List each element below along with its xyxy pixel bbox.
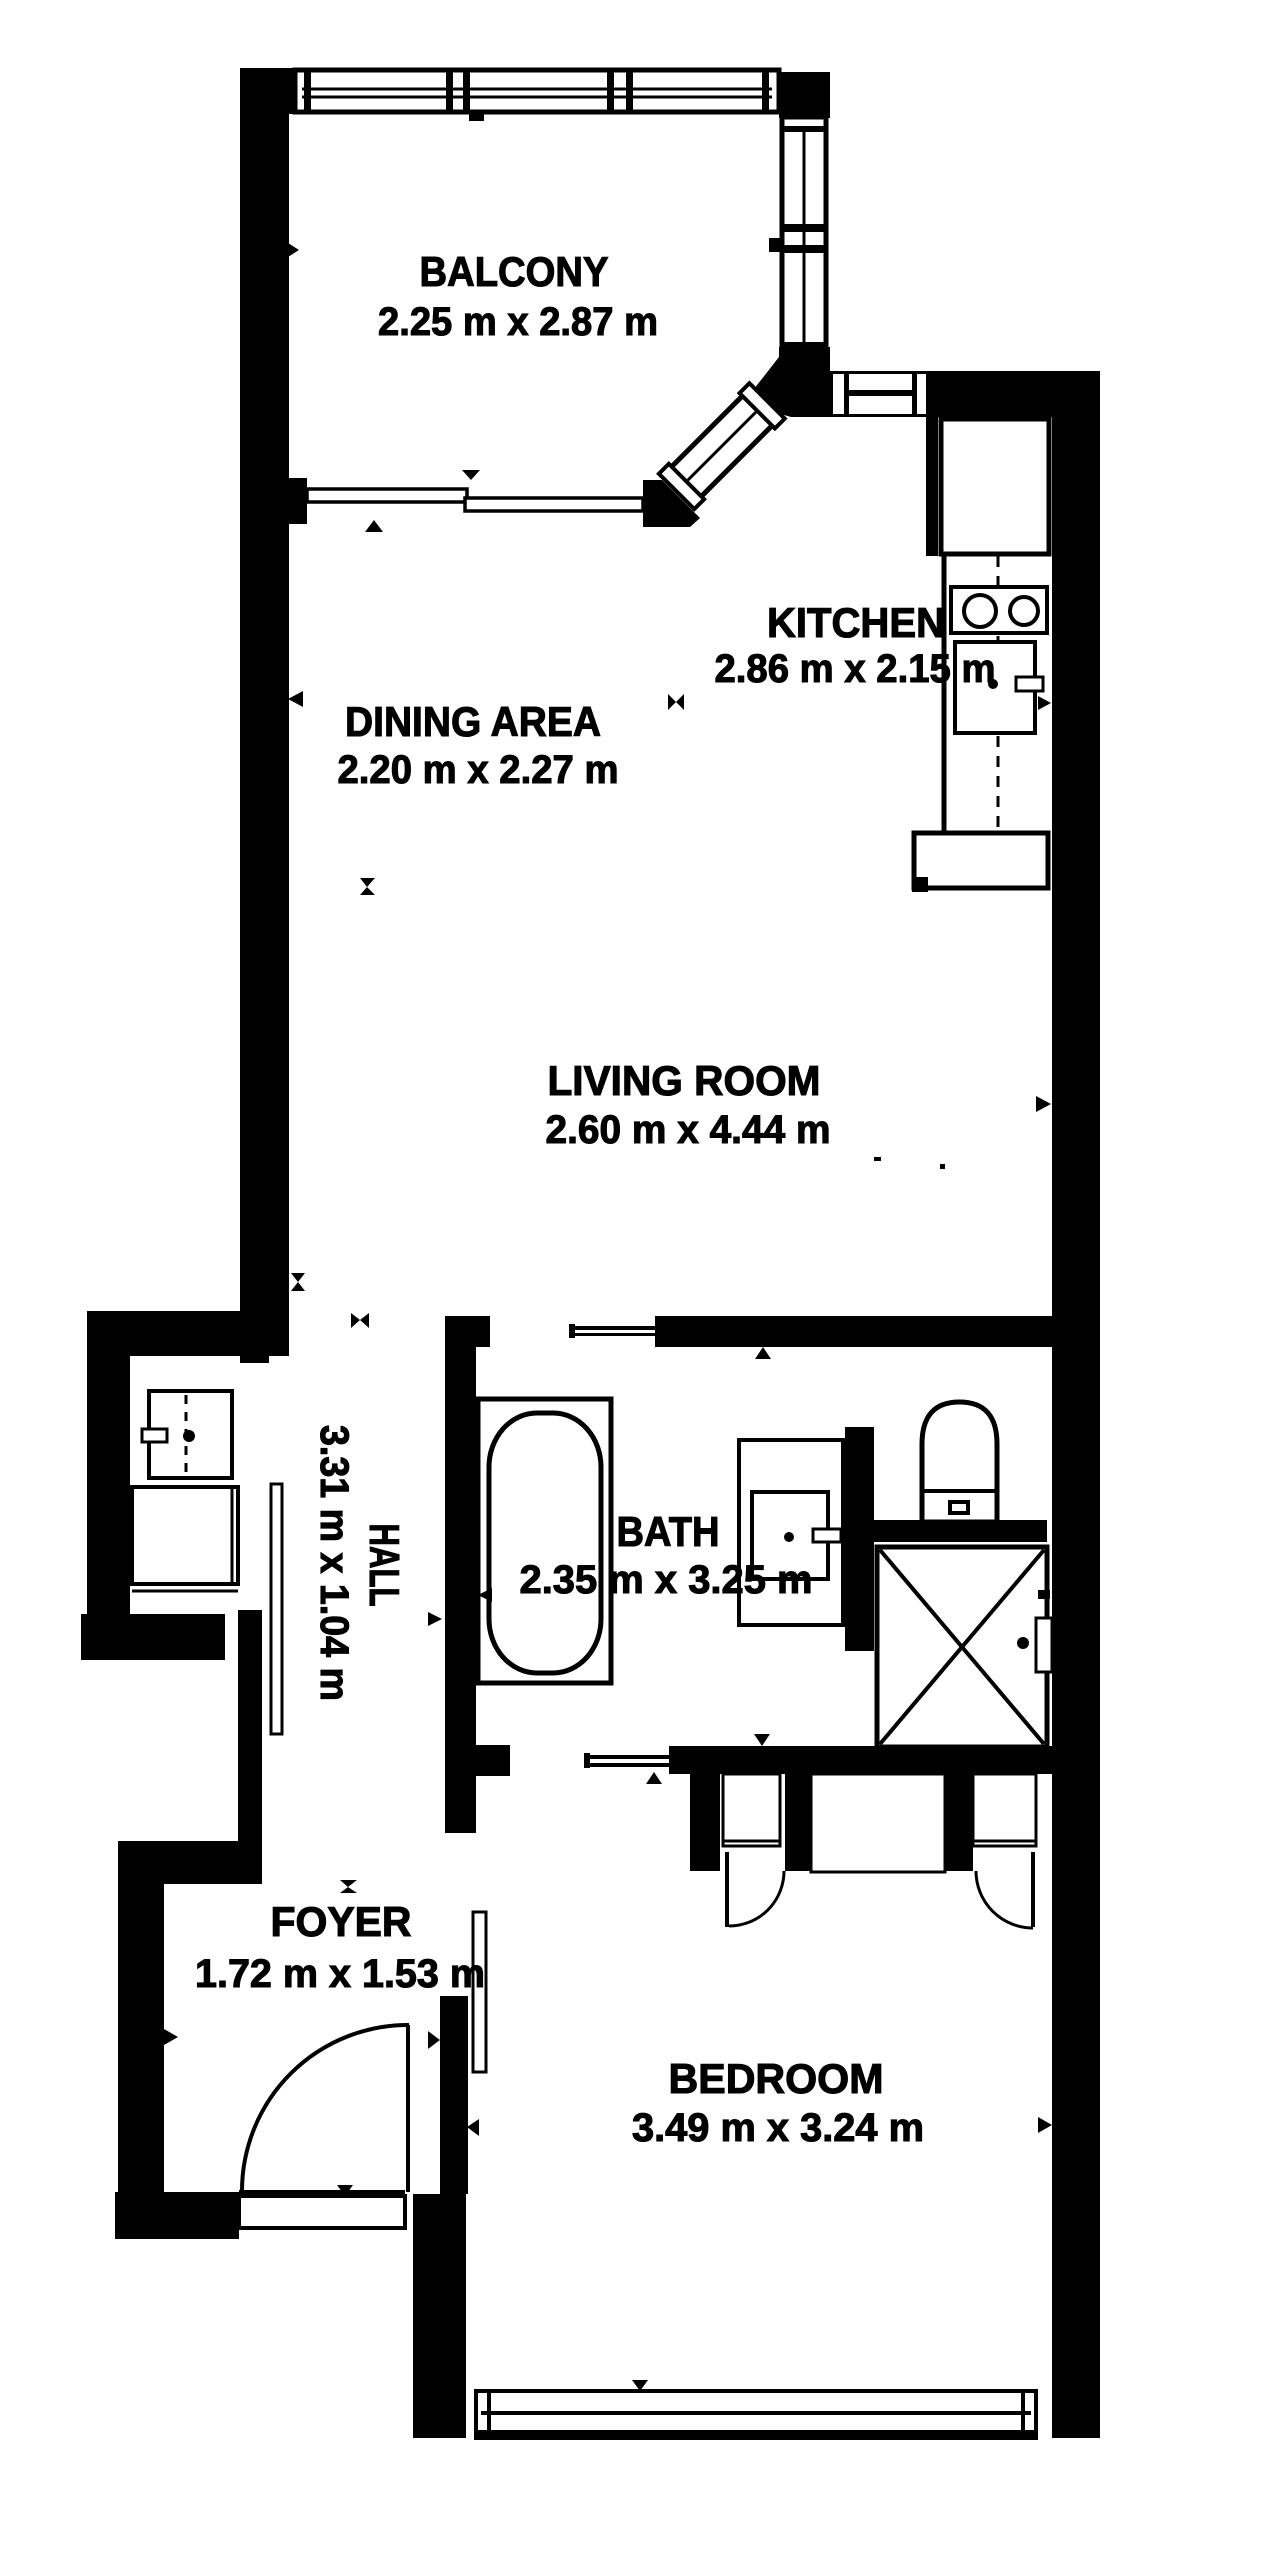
svg-text:BATH: BATH [617,1508,720,1555]
svg-text:KITCHEN: KITCHEN [767,599,945,646]
svg-text:2.35 m x 3.25 m: 2.35 m x 3.25 m [520,1558,813,1602]
svg-text:3.31 m x 1.04 m: 3.31 m x 1.04 m [312,1425,356,1701]
svg-text:2.25 m x 2.87 m: 2.25 m x 2.87 m [378,300,658,344]
svg-text:1.72 m x 1.53 m: 1.72 m x 1.53 m [195,1952,485,1996]
svg-text:FOYER: FOYER [271,1898,412,1945]
svg-text:BALCONY: BALCONY [420,248,609,295]
svg-text:HALL: HALL [361,1524,408,1607]
svg-text:DINING AREA: DINING AREA [345,698,601,745]
svg-text:2.20 m x 2.27 m: 2.20 m x 2.27 m [338,748,619,792]
svg-text:BEDROOM: BEDROOM [669,2055,884,2102]
svg-text:LIVING ROOM: LIVING ROOM [548,1057,821,1104]
svg-text:2.60 m x 4.44 m: 2.60 m x 4.44 m [546,1108,831,1152]
svg-text:2.86 m x 2.15 m: 2.86 m x 2.15 m [715,647,996,691]
svg-text:3.49 m x 3.24 m: 3.49 m x 3.24 m [632,2106,924,2150]
